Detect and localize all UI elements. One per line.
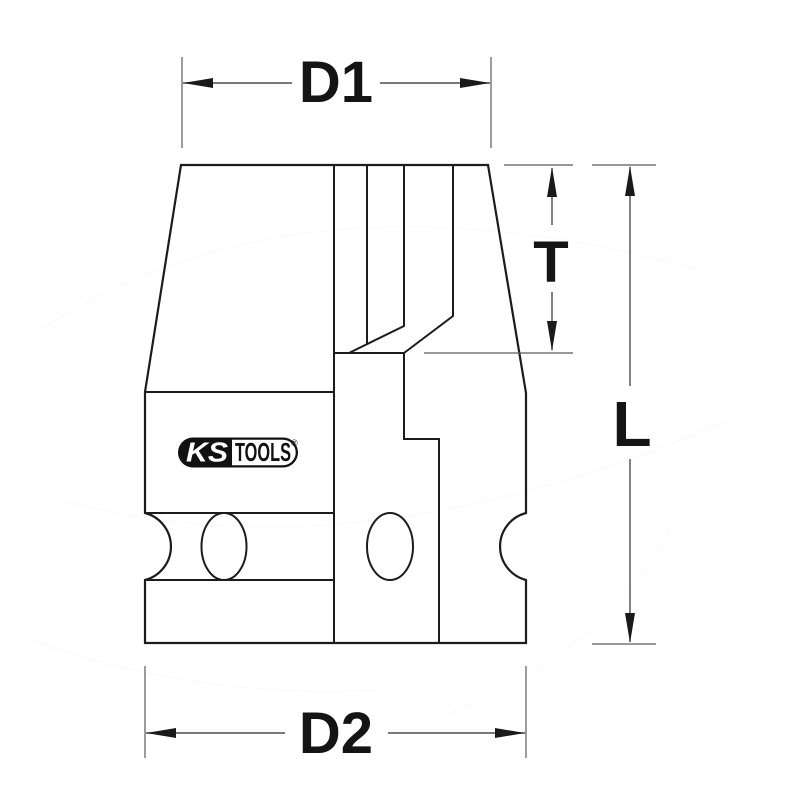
ks-tools-logo: KS TOOLS ® [178,437,298,468]
l-label: L [612,388,651,460]
technical-drawing-page: D1 T L D2 [0,0,800,800]
background [0,0,800,800]
d2-label: D2 [299,701,373,766]
t-label: T [533,230,568,295]
logo-registered-mark: ® [291,438,298,448]
logo-ks-text: KS [186,437,228,468]
logo-tools-text: TOOLS [235,437,291,467]
socket-dimension-diagram: D1 T L D2 [0,0,800,800]
d1-label: D1 [299,50,373,115]
